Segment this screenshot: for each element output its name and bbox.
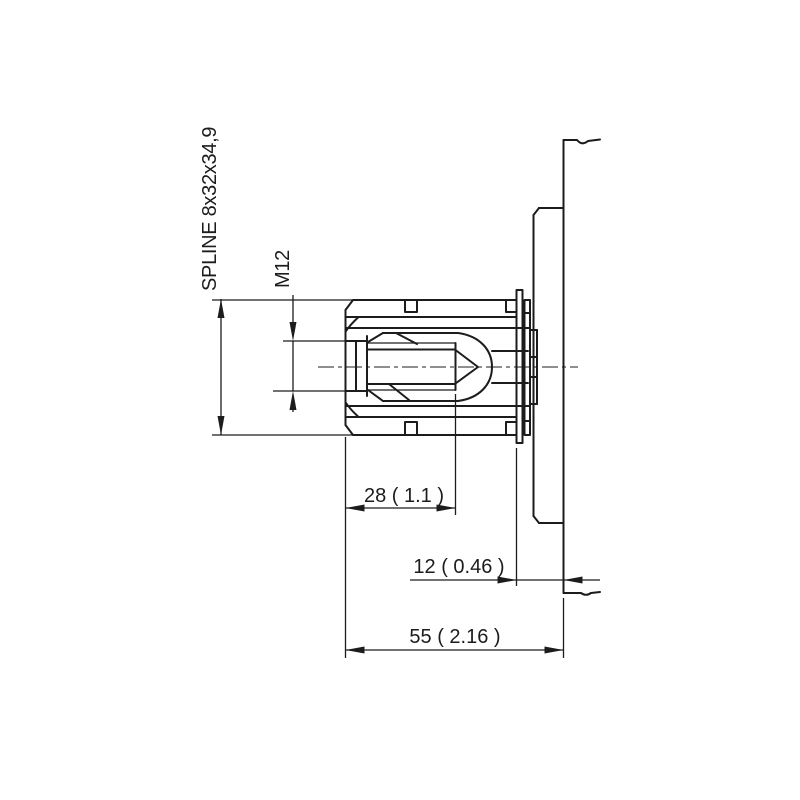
dim-m12: M12 xyxy=(272,250,357,412)
flange-assembly xyxy=(517,208,564,523)
thread-depth-label: 28 ( 1.1 ) xyxy=(364,485,444,507)
spline-tooth-top xyxy=(405,300,417,312)
thread-size-label: M12 xyxy=(272,250,294,288)
technical-drawing-canvas: SPLINE 8x32x34,9 M12 28 ( 1.1 ) 12 ( 0.4… xyxy=(0,0,800,800)
dim-pilot-offset: 12 ( 0.46 ) xyxy=(410,448,600,586)
pilot-offset-label: 12 ( 0.46 ) xyxy=(413,556,504,578)
dim-shaft-length: 55 ( 2.16 ) xyxy=(346,598,564,658)
spline-tooth-bottom xyxy=(405,422,417,435)
dim-thread-depth: 28 ( 1.1 ) xyxy=(346,394,456,658)
shaft-drawing: SPLINE 8x32x34,9 M12 28 ( 1.1 ) 12 ( 0.4… xyxy=(0,0,800,800)
shaft-length-label: 55 ( 2.16 ) xyxy=(409,626,500,648)
spline-spec-label: SPLINE 8x32x34,9 xyxy=(199,127,221,291)
motor-body-break xyxy=(564,140,601,595)
